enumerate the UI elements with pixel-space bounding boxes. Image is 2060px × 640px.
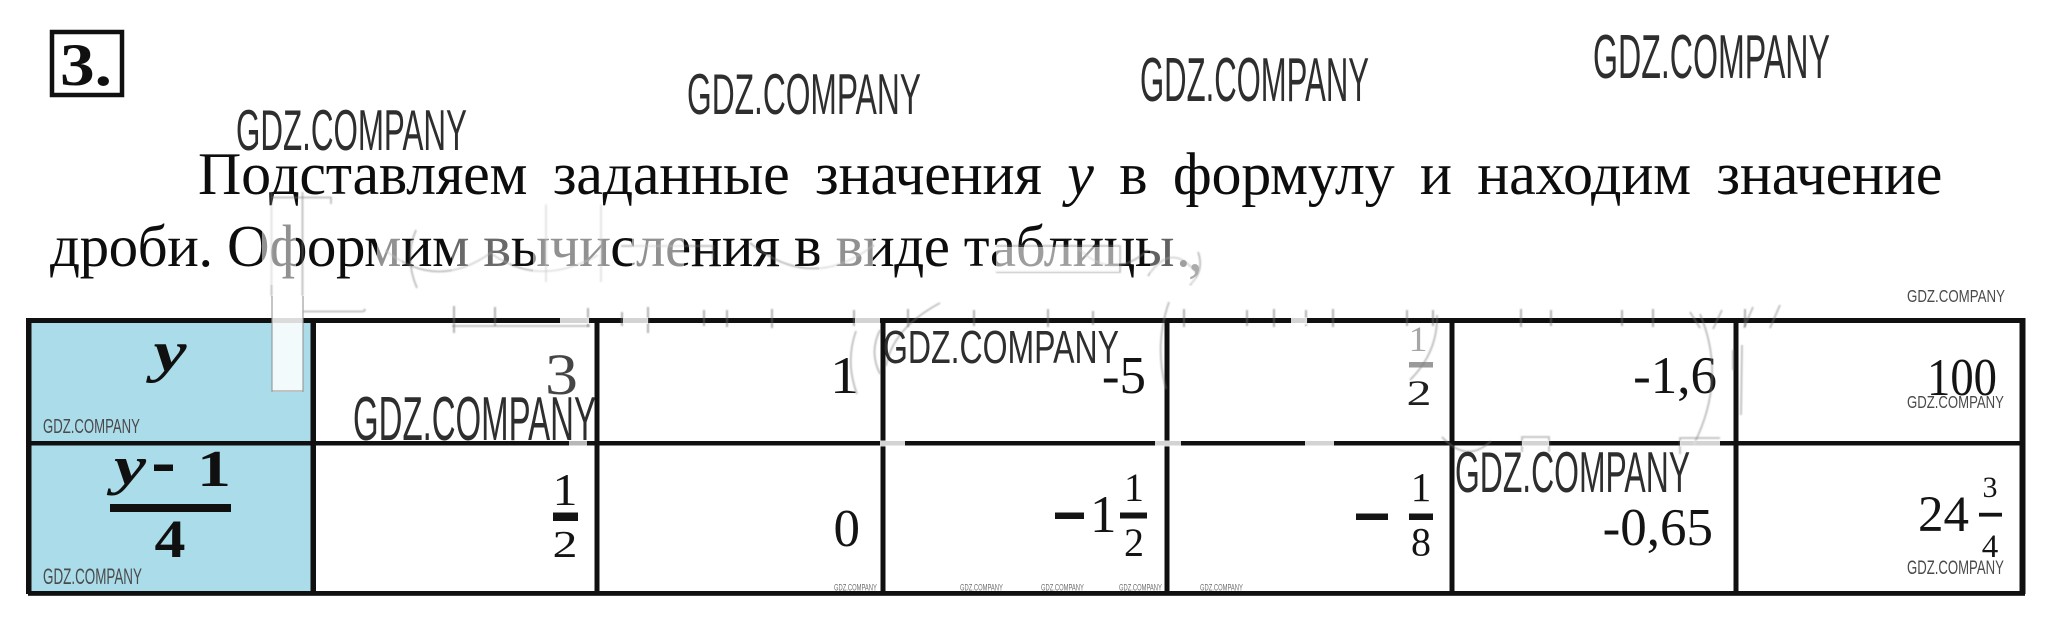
svg-text:1: 1 bbox=[830, 347, 859, 405]
svg-text:GDZ.COMPANY: GDZ.COMPANY bbox=[1455, 440, 1690, 504]
svg-text:GDZ.COMPANY: GDZ.COMPANY bbox=[1119, 582, 1162, 593]
svg-text:GDZ.COMPANY: GDZ.COMPANY bbox=[43, 414, 140, 438]
svg-text:1: 1 bbox=[1411, 464, 1432, 510]
svg-text:1: 1 bbox=[553, 464, 578, 515]
svg-text:4: 4 bbox=[155, 509, 186, 569]
svg-text:GDZ.COMPANY: GDZ.COMPANY bbox=[1593, 23, 1830, 92]
svg-text:1: 1 bbox=[1124, 465, 1144, 510]
svg-text:1: 1 bbox=[197, 441, 231, 498]
svg-text:GDZ.COMPANY: GDZ.COMPANY bbox=[353, 385, 596, 454]
svg-text:3.: 3. bbox=[60, 32, 112, 98]
svg-text:-0,65: -0,65 bbox=[1603, 499, 1713, 557]
svg-text:GDZ.COMPANY: GDZ.COMPANY bbox=[1907, 393, 2004, 412]
svg-text:GDZ.COMPANY: GDZ.COMPANY bbox=[1907, 287, 2005, 306]
svg-text:GDZ.COMPANY: GDZ.COMPANY bbox=[687, 62, 921, 126]
svg-text:GDZ.COMPANY: GDZ.COMPANY bbox=[1041, 582, 1084, 593]
svg-text:1: 1 bbox=[1409, 319, 1428, 359]
svg-text:24: 24 bbox=[1918, 487, 1969, 543]
svg-text:2: 2 bbox=[1124, 520, 1144, 565]
svg-text:8: 8 bbox=[1411, 520, 1431, 565]
svg-text:GDZ.COMPANY: GDZ.COMPANY bbox=[834, 582, 877, 593]
svg-text:GDZ.COMPANY: GDZ.COMPANY bbox=[236, 98, 467, 163]
svg-text:GDZ.COMPANY: GDZ.COMPANY bbox=[1200, 582, 1243, 593]
svg-text:2: 2 bbox=[553, 524, 578, 566]
svg-text:0: 0 bbox=[834, 500, 861, 558]
svg-text:-1,6: -1,6 bbox=[1633, 347, 1717, 405]
svg-text:GDZ.COMPANY: GDZ.COMPANY bbox=[960, 582, 1003, 593]
svg-text:3: 3 bbox=[1983, 471, 1998, 504]
svg-text:GDZ.COMPANY: GDZ.COMPANY bbox=[1140, 47, 1369, 115]
svg-text:1: 1 bbox=[1090, 486, 1117, 544]
svg-text:GDZ.COMPANY: GDZ.COMPANY bbox=[883, 322, 1119, 373]
svg-text:GDZ.COMPANY: GDZ.COMPANY bbox=[43, 565, 142, 589]
svg-text:GDZ.COMPANY: GDZ.COMPANY bbox=[1907, 558, 2004, 579]
svg-text:,: , bbox=[1188, 217, 1203, 283]
